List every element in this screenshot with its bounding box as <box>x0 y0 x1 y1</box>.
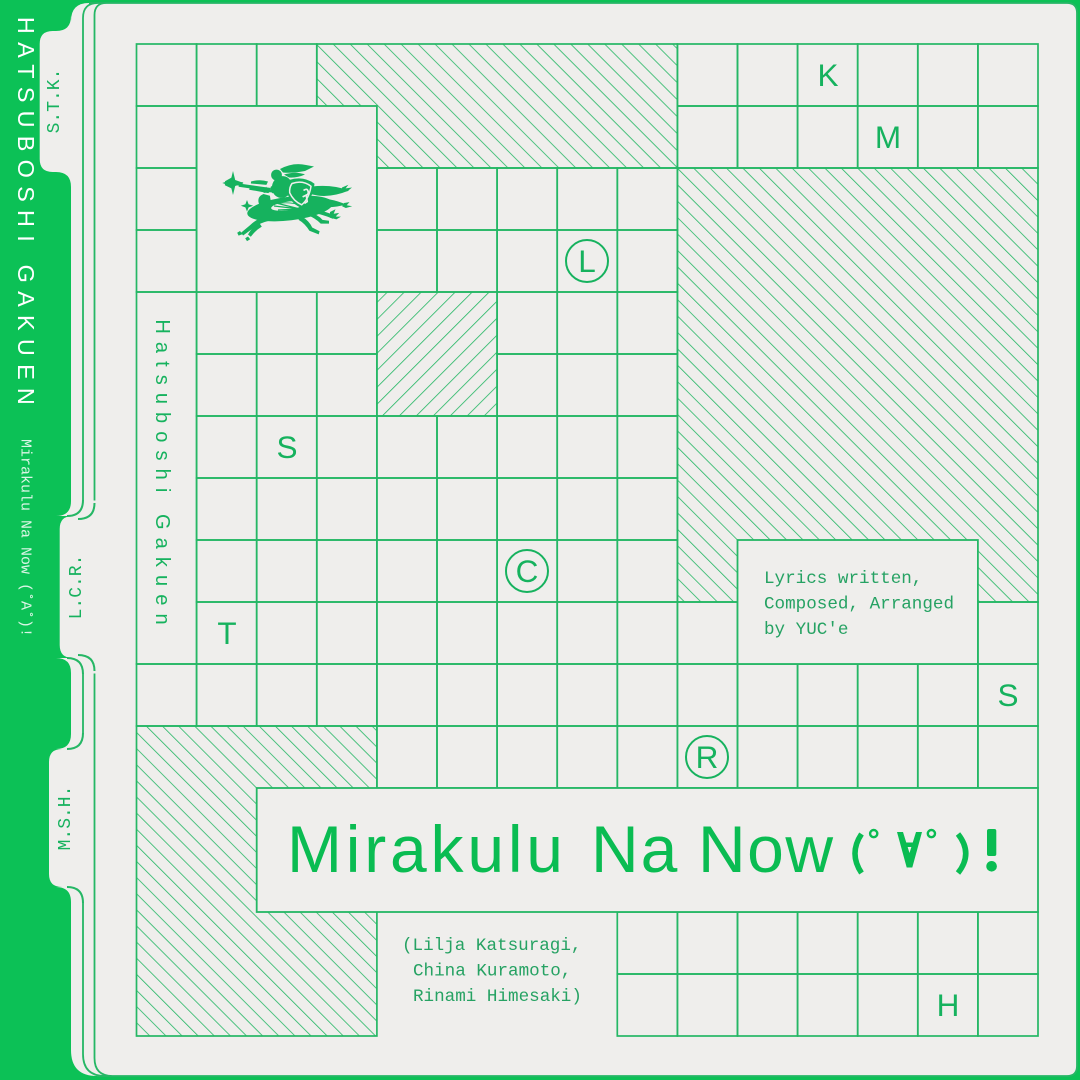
svg-text:China Kuramoto,: China Kuramoto, <box>413 962 571 982</box>
svg-text:S: S <box>276 429 297 465</box>
svg-text:HATSUBOSHI GAKUEN: HATSUBOSHI GAKUEN <box>13 17 39 413</box>
svg-text:L: L <box>578 243 596 279</box>
svg-text:R: R <box>696 739 719 775</box>
svg-text:S.T.K.: S.T.K. <box>45 69 65 134</box>
svg-text:Composed, Arranged: Composed, Arranged <box>764 595 954 615</box>
svg-text:L.C.R.: L.C.R. <box>67 555 87 620</box>
svg-text:Mirakulu Na Now (˚A˚)!: Mirakulu Na Now (˚A˚)! <box>17 439 34 637</box>
svg-text:T: T <box>217 615 236 651</box>
svg-text:S: S <box>997 677 1018 713</box>
svg-text:Lyrics written,: Lyrics written, <box>764 569 922 589</box>
svg-text:H: H <box>937 987 960 1023</box>
svg-text:M: M <box>875 119 901 155</box>
svg-text:Na: Na <box>591 812 679 886</box>
svg-text:M.S.H.: M.S.H. <box>56 786 76 851</box>
svg-text:K: K <box>817 57 838 93</box>
svg-text:Mirakulu: Mirakulu <box>287 812 567 886</box>
svg-text:C: C <box>516 553 539 589</box>
svg-text:by YUC'e: by YUC'e <box>764 620 848 640</box>
svg-text:Rinami Himesaki): Rinami Himesaki) <box>413 987 582 1007</box>
svg-text:Now: Now <box>698 812 835 886</box>
svg-text:Hatsuboshi Gakuen: Hatsuboshi Gakuen <box>151 319 173 632</box>
svg-text:(Lilja Katsuragi,: (Lilja Katsuragi, <box>402 936 582 956</box>
